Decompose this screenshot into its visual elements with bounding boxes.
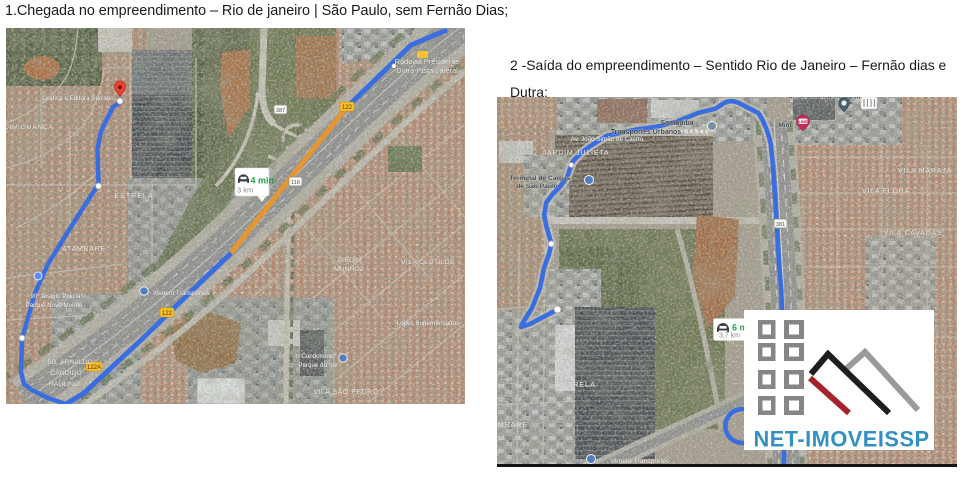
svg-text:Veneto Transportes: Veneto Transportes bbox=[611, 458, 671, 465]
svg-text:CÂNDIDO: CÂNDIDO bbox=[50, 368, 81, 377]
svg-text:VILA CAVADAS: VILA CAVADAS bbox=[884, 230, 943, 237]
svg-text:3,7 km: 3,7 km bbox=[719, 333, 740, 340]
svg-text:LINE: LINE bbox=[798, 119, 807, 124]
svg-text:JARDIM: JARDIM bbox=[336, 257, 362, 264]
svg-text:ATAMBARE: ATAMBARE bbox=[62, 246, 106, 253]
svg-text:Parque Novo Mundo: Parque Novo Mundo bbox=[26, 302, 83, 309]
svg-text:MUNHOZ: MUNHOZ bbox=[334, 266, 364, 273]
svg-text:de Segurança e Logística: de Segurança e Logística bbox=[788, 97, 868, 101]
svg-text:Gráfica e Editora Serrano: Gráfica e Editora Serrano bbox=[42, 95, 114, 102]
svg-text:Terminal de Cargas: Terminal de Cargas bbox=[510, 175, 571, 182]
svg-text:VILA CLOTILDE: VILA CLOTILDE bbox=[401, 259, 455, 266]
svg-text:Parque do Sol: Parque do Sol bbox=[298, 362, 337, 369]
svg-text:de São Paulo: de São Paulo bbox=[516, 183, 557, 190]
svg-text:381: 381 bbox=[776, 222, 785, 228]
svg-text:SD. ARNALDO: SD. ARNALDO bbox=[47, 359, 93, 366]
svg-text:122: 122 bbox=[342, 105, 353, 111]
svg-text:Transportes Urbanos: Transportes Urbanos bbox=[611, 129, 682, 136]
svg-text:Dutra-Pista Lateral: Dutra-Pista Lateral bbox=[396, 66, 458, 75]
svg-text:VILA FLORA: VILA FLORA bbox=[862, 188, 910, 195]
svg-text:Condomínio: Condomínio bbox=[301, 353, 335, 360]
svg-text:Veneto Transportes: Veneto Transportes bbox=[154, 290, 209, 297]
svg-text:NET-IMOVEISSP: NET-IMOVEISSP bbox=[753, 427, 929, 451]
svg-text:Sambaiba: Sambaiba bbox=[660, 120, 693, 127]
svg-text:90º Distrito Policial -: 90º Distrito Policial - bbox=[30, 293, 85, 300]
svg-text:ESTRELA: ESTRELA bbox=[556, 380, 596, 389]
svg-text:VILA SÃO PEDRO: VILA SÃO PEDRO bbox=[313, 387, 378, 396]
svg-text:Av. João Simão de Castro: Av. João Simão de Castro bbox=[571, 136, 644, 143]
svg-text:VILA MARAJÁ: VILA MARAJÁ bbox=[898, 166, 952, 175]
svg-text:122: 122 bbox=[162, 311, 173, 317]
svg-text:ESTRELA: ESTRELA bbox=[115, 193, 154, 200]
svg-text:116: 116 bbox=[291, 180, 300, 186]
svg-text:4 min: 4 min bbox=[251, 176, 275, 186]
svg-text:3 km: 3 km bbox=[237, 186, 253, 195]
svg-text:RAULINO: RAULINO bbox=[49, 381, 79, 388]
svg-text:Rodovia Presidente: Rodovia Presidente bbox=[395, 57, 460, 66]
svg-text:Lopes Supermercados: Lopes Supermercados bbox=[397, 320, 459, 327]
svg-text:JARDIM JULIETA: JARDIM JULIETA bbox=[543, 150, 610, 157]
svg-text:RDIM GUANÇA: RDIM GUANÇA bbox=[6, 124, 53, 131]
svg-text:Mint: Mint bbox=[778, 122, 792, 129]
svg-text:MBARE: MBARE bbox=[498, 420, 529, 429]
